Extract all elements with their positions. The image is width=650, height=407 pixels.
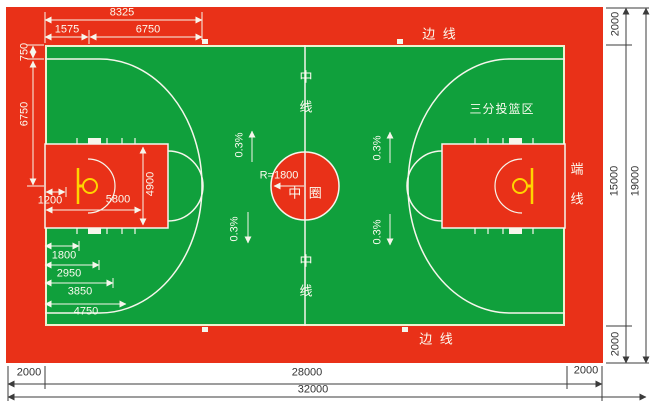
court-diagram: 8325 1575 6750 750 6750 1200 5800 4900 1… [0, 0, 650, 407]
slope-label: 0.3% [230, 216, 241, 241]
center-line-label-bottom: 中 线 [299, 254, 312, 298]
dim-1800-label: 1800 [52, 251, 76, 262]
dim-2000-bottom-left-label: 2000 [17, 368, 41, 379]
dim-2000-top-right-label: 2000 [611, 12, 622, 36]
slope-label: 0.3% [235, 132, 246, 157]
dim-28000-label: 28000 [292, 368, 323, 379]
key-right [442, 144, 565, 228]
center-circle-label: 中 圈 [288, 187, 324, 200]
dim-6750-top-label: 6750 [136, 25, 160, 36]
slope-label: 0.3% [373, 219, 384, 244]
dim-750-label: 750 [20, 43, 31, 61]
dim-2000-bottom-right-label: 2000 [611, 332, 622, 356]
court-lines-layer [0, 0, 650, 407]
slope-label: 0.3% [373, 135, 384, 160]
dim-8325-label: 8325 [110, 8, 134, 19]
endline-label: 端 线 [570, 162, 583, 206]
throw-in-mark [397, 39, 403, 44]
throw-in-mark [202, 327, 208, 332]
sideline-label-top: 边 线 [422, 28, 458, 41]
dim-19000-label: 19000 [631, 166, 642, 197]
dim-6750-left-label: 6750 [20, 102, 31, 126]
dim-1575-label: 1575 [55, 25, 79, 36]
dim-r1800-label: R=1800 [260, 171, 299, 182]
dim-15000-label: 15000 [610, 166, 621, 197]
three-point-area-label: 三分投篮区 [469, 103, 534, 115]
dim-3850-label: 3850 [68, 287, 92, 298]
throw-in-mark [202, 39, 208, 44]
free-throw-arc-right [407, 151, 442, 221]
throw-in-mark [402, 327, 408, 332]
sideline-label-bottom: 边 线 [419, 333, 455, 346]
dim-4900-label: 4900 [146, 172, 157, 196]
dim-2950-label: 2950 [57, 269, 81, 280]
dim-1200-label: 1200 [38, 196, 62, 207]
dim-4750-label: 4750 [74, 307, 98, 318]
free-throw-arc-left [168, 151, 203, 221]
dim-5800-label: 5800 [106, 195, 130, 206]
dim-32000-label: 32000 [298, 385, 329, 396]
center-line-label-top: 中 线 [299, 70, 312, 114]
dim-2000-bottom-right2-label: 2000 [574, 366, 598, 377]
